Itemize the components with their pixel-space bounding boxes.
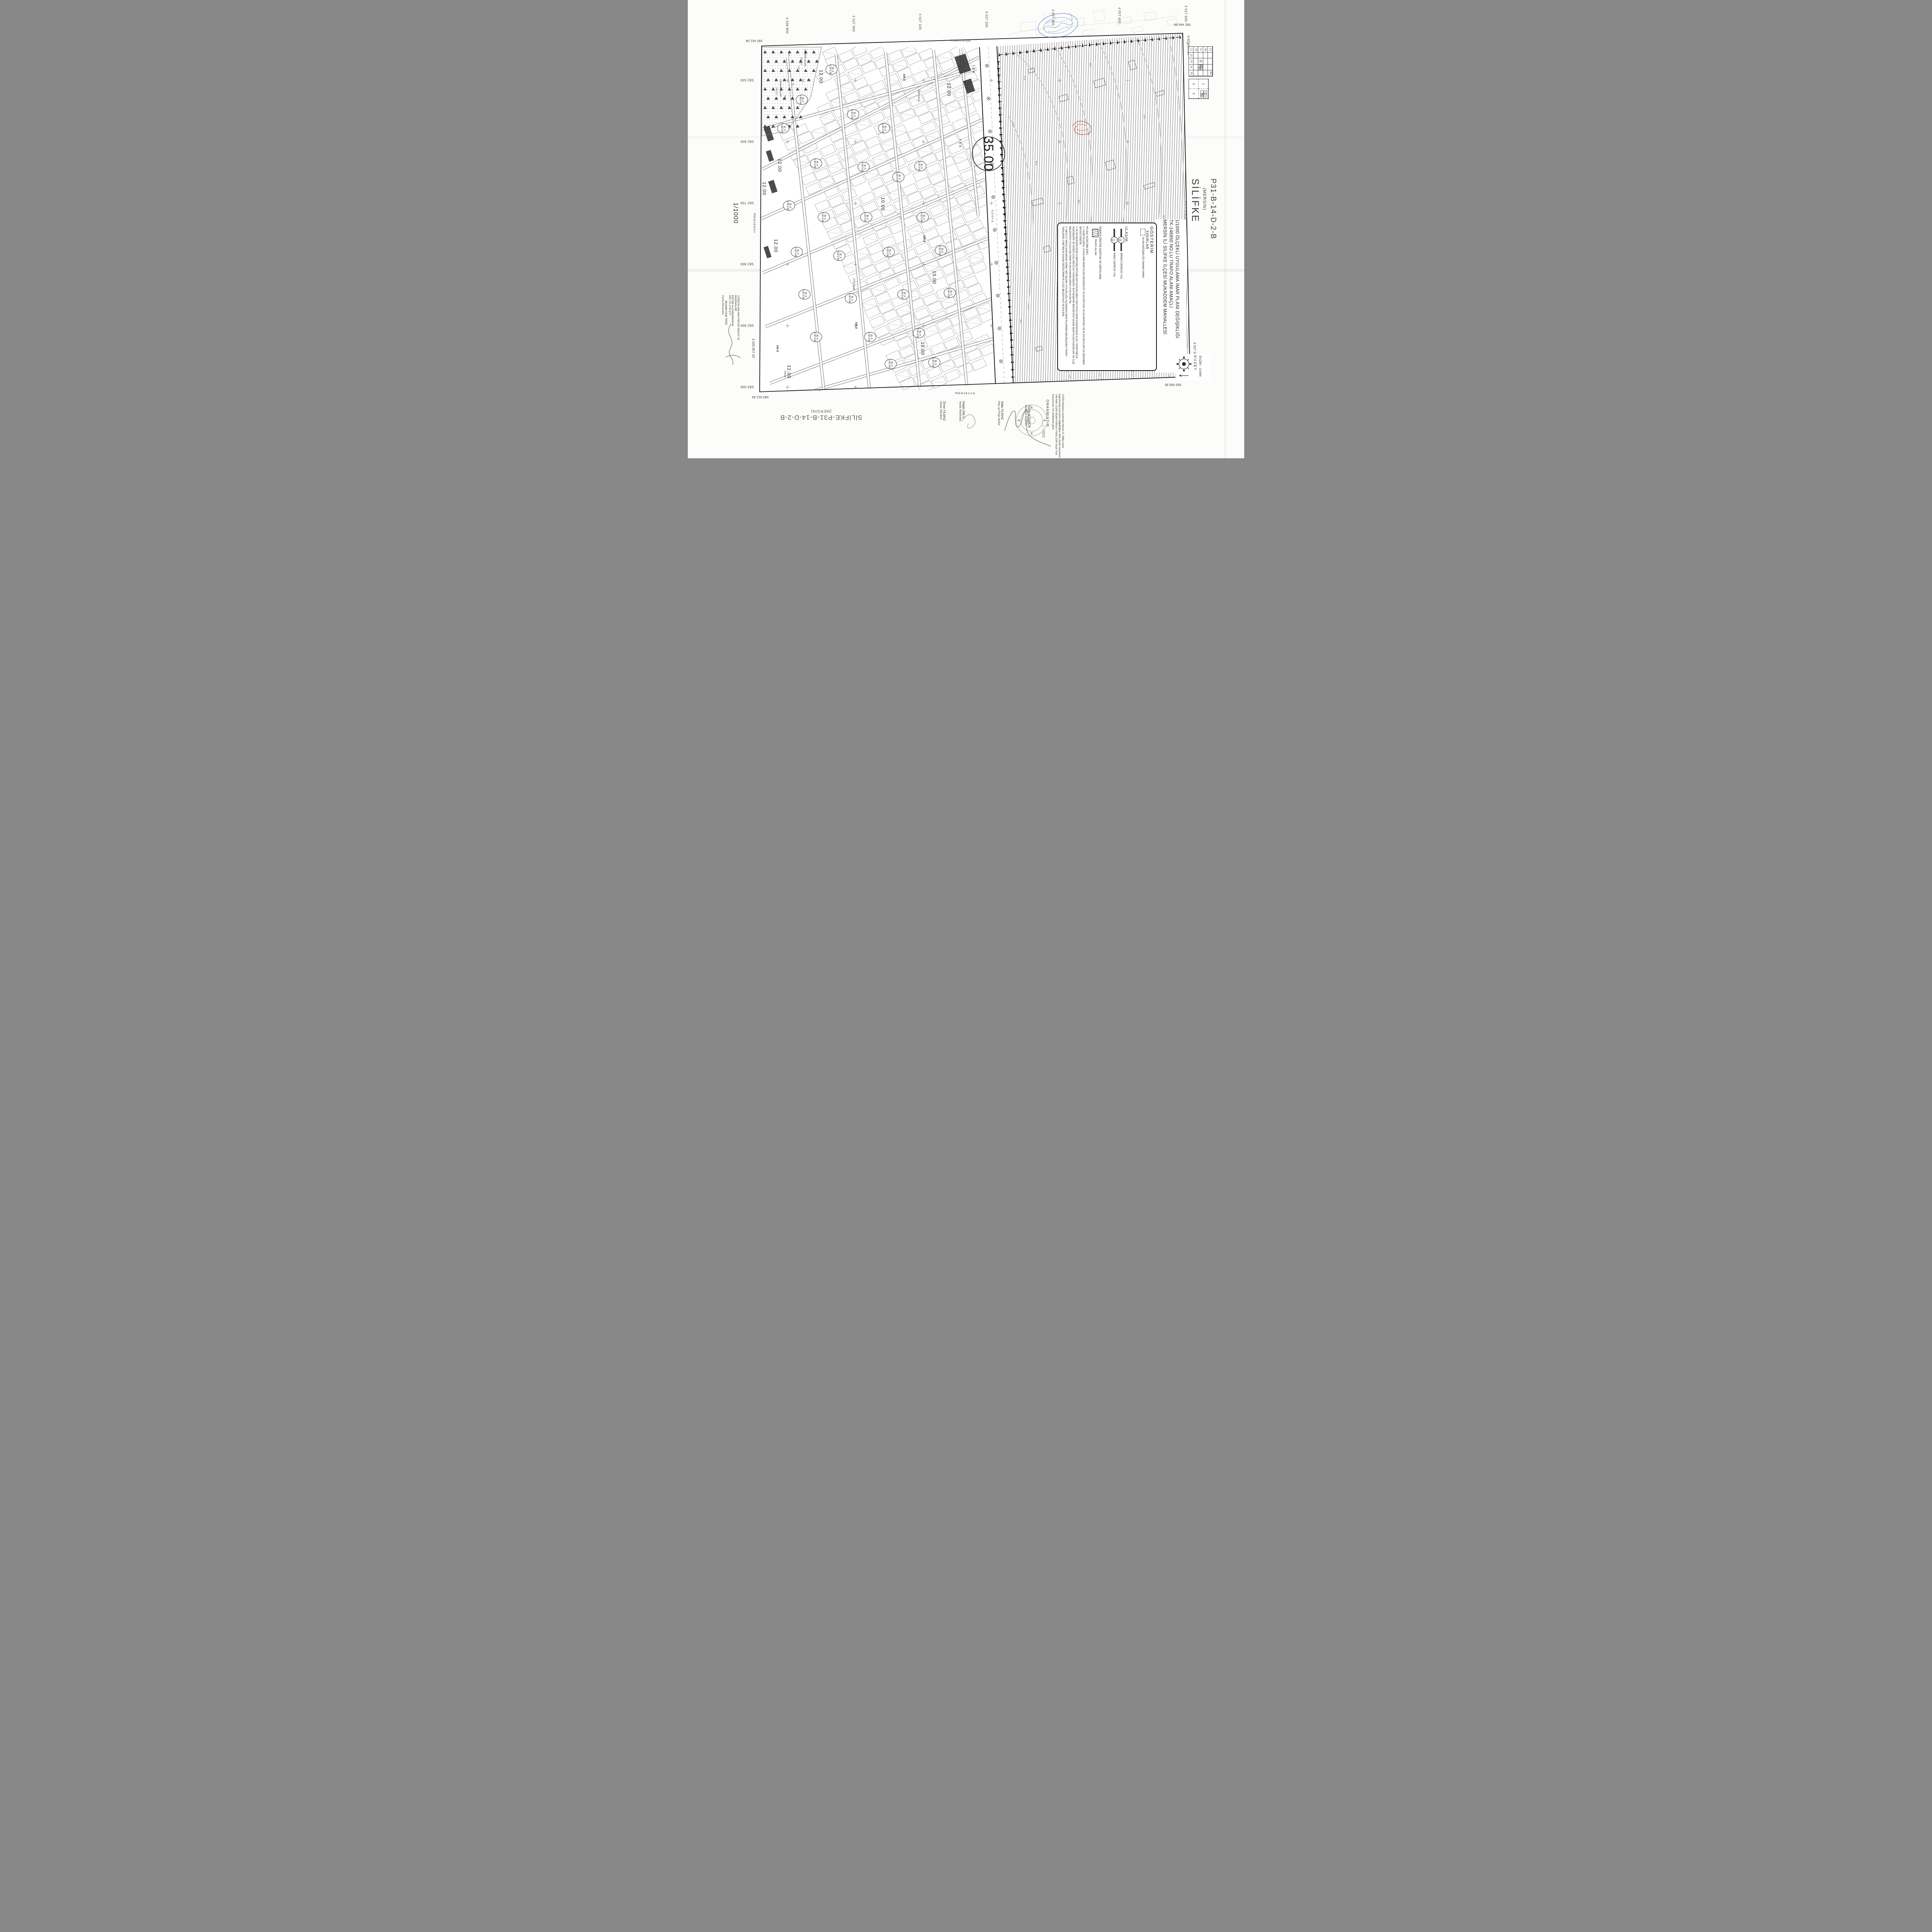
road-name: KONYA	[991, 210, 993, 223]
ykk-mark: YKK	[972, 65, 975, 74]
spot-height: 99	[791, 83, 794, 85]
road-width-label: 12.00	[762, 182, 767, 195]
legend-item-ikinci-label: İKİNCİ DERECE YOL	[1113, 253, 1116, 277]
road-width-label: 12.00	[773, 239, 779, 252]
index-cell: 06	[1203, 47, 1208, 53]
legend-heading-sinirlar: SINIRLAR	[1145, 230, 1149, 367]
legend-col-enerji: ENERJİ ÜRETİM DAĞITIM VE DEPOLAMA TRAFO …	[1092, 226, 1101, 367]
grid-easting-label: 582 500	[740, 78, 753, 82]
ykk-mark: YKK	[958, 139, 962, 148]
forest-area-label: ORMAN ALANI	[804, 49, 806, 67]
legend-col-sinirlar: GÖSTERİM SINIRLAR PLAN DEĞİŞİKLİĞİ ONAMA…	[1140, 226, 1154, 367]
neighbor-sheet-left: P31-b-14-d-2-c	[753, 213, 756, 233]
quadrant-cell: 3	[1189, 89, 1199, 99]
svg-text:UA-2: UA-2	[923, 235, 926, 242]
road-width-label: 12.00	[777, 158, 782, 172]
spot-height: 46.1	[1019, 320, 1022, 324]
grid-northing-label: 4 027 500	[1184, 5, 1187, 22]
road-width-label: 10.00	[932, 270, 937, 284]
zoning-label: BL-30.30 0.90	[791, 247, 803, 257]
plan-provisions-title: PLAN HÜKÜMLERİ:	[1085, 226, 1089, 367]
index-cell: 16	[1194, 47, 1198, 53]
forest-area-code: OA-2.2	[800, 57, 802, 65]
zoning-label: BL-30.30 0.90	[944, 288, 956, 298]
second-degree-road-symbol: 15	[1111, 229, 1117, 251]
spot-height: 100	[787, 53, 790, 56]
forest-area-label: ORMAN ALANI	[779, 80, 782, 97]
zoning-label: BL-30.30 0.90	[883, 247, 895, 257]
zoning-label: BL-30.30 0.90	[893, 172, 904, 182]
zoning-label: UA-2	[855, 322, 858, 329]
spot-height: 103.7	[797, 66, 799, 71]
grid-easting-label: 582 600	[740, 139, 753, 143]
zoning-label: BL-30.30 0.90	[858, 162, 869, 172]
first-degree-road-width: 25	[1119, 238, 1122, 242]
zoning-label: BL-30.30 0.90	[917, 212, 929, 222]
street-name: 375 Sokak	[852, 278, 855, 290]
legend-item-ikinci: 15 İKİNCİ DERECE YOL	[1111, 228, 1117, 367]
zoning-label: BL-30.30 0.90	[818, 212, 830, 222]
index-cell: 21	[1189, 47, 1194, 53]
engineer-signature	[719, 320, 743, 370]
legend-item-onama: PLAN DEĞİŞİKLİĞİ ONAMA SINIRI	[1140, 228, 1145, 367]
forest-area-code: OA-2.2	[775, 87, 777, 95]
sheet-scale-label: 1/1000	[732, 202, 739, 224]
red-pen-annotation	[1069, 115, 1096, 138]
spot-height: 48.2	[1089, 63, 1091, 67]
road-width-label: 10.00	[880, 197, 886, 211]
corner-coordinate-bl-e: 583 012.49	[752, 395, 769, 398]
index-cell: 22	[1189, 53, 1194, 58]
street-name: Sokak	[784, 371, 786, 378]
mirrored-sheet-title: SİLİFKE-P31-B-14-D-2-B (MERSİN)	[767, 409, 875, 421]
sheet-province: (MERSİN)	[1202, 188, 1207, 291]
legend-item-birinci-label: BİRİNCİ DERECE YOL	[1120, 253, 1122, 279]
north-indicator: KUZEY ÖLÇEK : 1/1000	[1175, 354, 1211, 380]
road-width-label: 12.00	[818, 70, 824, 83]
zoning-label: BL-30.30 0.90	[861, 212, 872, 222]
road-width-label: 10.00	[920, 342, 925, 355]
north-label: KUZEY	[1193, 355, 1197, 371]
road-width-label: 12.00	[946, 83, 952, 96]
svg-text:UA-2: UA-2	[903, 74, 906, 81]
neighbor-sheet-top: P31-b-14-d-2-a	[951, 39, 970, 42]
plan-title-band: MERSİN İLİ SİLİFKE İLÇESİ MUKADDEM MAHAL…	[1155, 219, 1186, 372]
zoning-label: BL-30.30 0.90	[810, 332, 822, 342]
svg-text:UA-2: UA-2	[855, 322, 858, 329]
map-scale-label: ÖLÇEK : 1/1000	[1199, 355, 1202, 377]
signer-name: Ömer YILMAZ	[942, 401, 946, 444]
legend-heading-ulasim: ULAŞIM	[1124, 226, 1128, 367]
plan-provision-3: 3. MEVCUT ARAZİ DURUMUNA GÖRE YER SEÇİMİ…	[1061, 226, 1068, 367]
zoning-label: BL-30.30 0.90	[878, 123, 890, 133]
zoning-label: BL-30.30 0.90	[777, 123, 789, 133]
spot-height: 105	[802, 78, 804, 82]
spot-height: 30.2	[1162, 215, 1165, 219]
corner-coordinate-bl-n: 4 026 857.43	[751, 338, 755, 358]
index-cell: 11	[1198, 47, 1203, 53]
plan-boundary-symbol	[1140, 229, 1145, 235]
index-number: 31	[1209, 71, 1213, 75]
zoning-label: UA-2	[903, 74, 906, 81]
legend-panel: GÖSTERİM SINIRLAR PLAN DEĞİŞİKLİĞİ ONAMA…	[1057, 223, 1157, 371]
spot-height: 43.4	[1012, 122, 1014, 127]
neighbor-sheet-right: P31-b-14-a-3-c	[1184, 201, 1187, 220]
zoning-label: BL-30.30 0.90	[864, 332, 876, 342]
corner-coordinate-tr-e: 582 444.99	[1174, 22, 1190, 26]
signer-title: Harita Teknikeri	[939, 401, 942, 444]
quadrant-subquad: d a c b	[1200, 90, 1207, 97]
zoning-label: UA-2	[923, 235, 926, 242]
plan-title-line3: 1/1000 ÖLÇEKLİ UYGULAMA İMAR PLANI DEĞİŞ…	[1175, 219, 1179, 372]
sheet-title-block: SİLİFKE (MERSİN) P31-B-14-D-2-B	[1189, 179, 1218, 291]
sheet-city: SİLİFKE	[1189, 179, 1201, 291]
sheet-quadrant-grid: 4 1 3 2 d a c b	[1189, 79, 1209, 99]
zoning-label: BL-30.30 0.90	[915, 161, 926, 171]
grid-northing-label: 4 027 200	[985, 11, 988, 27]
scanned-zoning-map-sheet: BL-30.30 0.90BL-30.30 0.90BL-30.30 0.90B…	[688, 0, 1244, 458]
spot-height: 33.4	[1143, 115, 1145, 119]
index-subquad: d a c b	[1198, 65, 1202, 70]
zoning-label: BL-30.30 0.90	[898, 289, 909, 299]
plan-title-line1: MERSİN İLİ SİLİFKE İLÇESİ MUKADDEM MAHAL…	[1162, 219, 1167, 372]
street-name: 364 Sokak	[917, 90, 920, 102]
grid-northing-label: 4 027 000	[852, 15, 855, 32]
corner-coordinate-tl: 582 451.58	[746, 39, 762, 42]
legend-col-hukumler: PLAN HÜKÜMLERİ: 1. 1/1000 ÖLÇEKLİ UYGULA…	[1060, 226, 1089, 367]
sheet-code: P31-B-14-D-2-B	[1209, 179, 1217, 291]
signature-block-1: Ömer YILMAZ Harita Teknikeri	[939, 401, 946, 444]
grid-easting-label: 583 000	[740, 385, 753, 388]
second-degree-road-width: 15	[1112, 238, 1115, 242]
corner-coordinate-br-e: 583 005.85	[1165, 383, 1181, 386]
plan-title-line2: TK-146950 NO.LU TRAFO ALANI AMAÇLI	[1168, 219, 1173, 372]
zoning-label: BL-30.30 0.90	[847, 109, 859, 119]
index-cell: 24	[1189, 65, 1194, 70]
grid-northing-label: 4 027 400	[1117, 7, 1121, 24]
zoning-label: BL-30.30 0.90	[929, 357, 940, 367]
svg-text:UA-2: UA-2	[776, 345, 779, 352]
first-degree-road-symbol: 25	[1117, 229, 1124, 251]
spot-height: 46.4	[1035, 161, 1037, 165]
spot-height: 47.6	[1023, 76, 1026, 80]
spot-height: 45.2	[1077, 200, 1080, 204]
zoning-label: BL-30.30 0.90	[885, 359, 896, 369]
legend-item-birinci: 25 BİRİNCİ DERECE YOL	[1117, 228, 1124, 367]
quadrant-cell: 4	[1189, 79, 1199, 89]
index-cell: 01	[1208, 47, 1213, 53]
grid-easting-label: 582 800	[740, 262, 753, 265]
quadrant-cell-current: 2 d a c b	[1199, 89, 1208, 99]
legend-heading-enerji: ENERJİ ÜRETİM DAĞITIM VE DEPOLAMA	[1099, 226, 1101, 367]
seal-and-signatures	[958, 394, 1074, 452]
main-road-width-value: 35.00	[981, 136, 996, 171]
index-cell-current-block: B	[1198, 58, 1203, 64]
zoning-label: BL-30.30 0.90	[796, 95, 808, 105]
zoning-label: BL-30.30 0.90	[833, 251, 845, 261]
zoning-label: UA-2	[776, 345, 779, 352]
index-cell: 23	[1189, 58, 1194, 64]
legend-item-trafo-label: TRAFO ALANI	[1094, 239, 1097, 255]
spot-height: 98.6	[784, 95, 786, 100]
zoning-label: BL-30.30 0.90	[810, 158, 822, 168]
zoning-label: BL-30.30 0.90	[826, 65, 837, 75]
grid-easting-label: 582 700	[740, 201, 753, 204]
legend-heading-gosterim: GÖSTERİM	[1149, 226, 1154, 367]
legend-item-trafo: TRAFO ALANI	[1092, 228, 1099, 367]
grid-northing-label: 4 026 900	[785, 17, 789, 34]
zoning-label: BL-30.30 0.90	[845, 293, 857, 303]
index-letter: P	[1185, 43, 1189, 45]
zoning-label: BL-30.30 0.90	[799, 289, 810, 299]
legend-col-ulasim: ULAŞIM 25 BİRİNCİ DERECE YOL 15 İKİNCİ D…	[1111, 226, 1128, 367]
plan-provision-2: 2. PLAN DEĞİŞİKLİĞİNE İLİŞKİN BELİRTİLME…	[1068, 226, 1078, 367]
plan-provision-1: 1. 1/1000 ÖLÇEKLİ UYGULAMA İMAR PLANI DE…	[1078, 226, 1085, 367]
zoning-label: BL-30.30 0.90	[935, 245, 947, 255]
compass-rose-icon	[1175, 354, 1192, 377]
index-cell: 25	[1189, 70, 1194, 76]
trafo-area-symbol	[1092, 229, 1099, 237]
grid-northing-label: 4 027 100	[918, 14, 922, 30]
zoning-label: BL-30.30 0.90	[783, 201, 795, 211]
legend-item-onama-label: PLAN DEĞİŞİKLİĞİ ONAMA SINIRI	[1142, 237, 1145, 278]
road-width-label: 12.00	[786, 365, 792, 378]
zoning-label: BL-30.30 0.90	[913, 328, 925, 338]
quadrant-cell: 1	[1199, 79, 1208, 89]
